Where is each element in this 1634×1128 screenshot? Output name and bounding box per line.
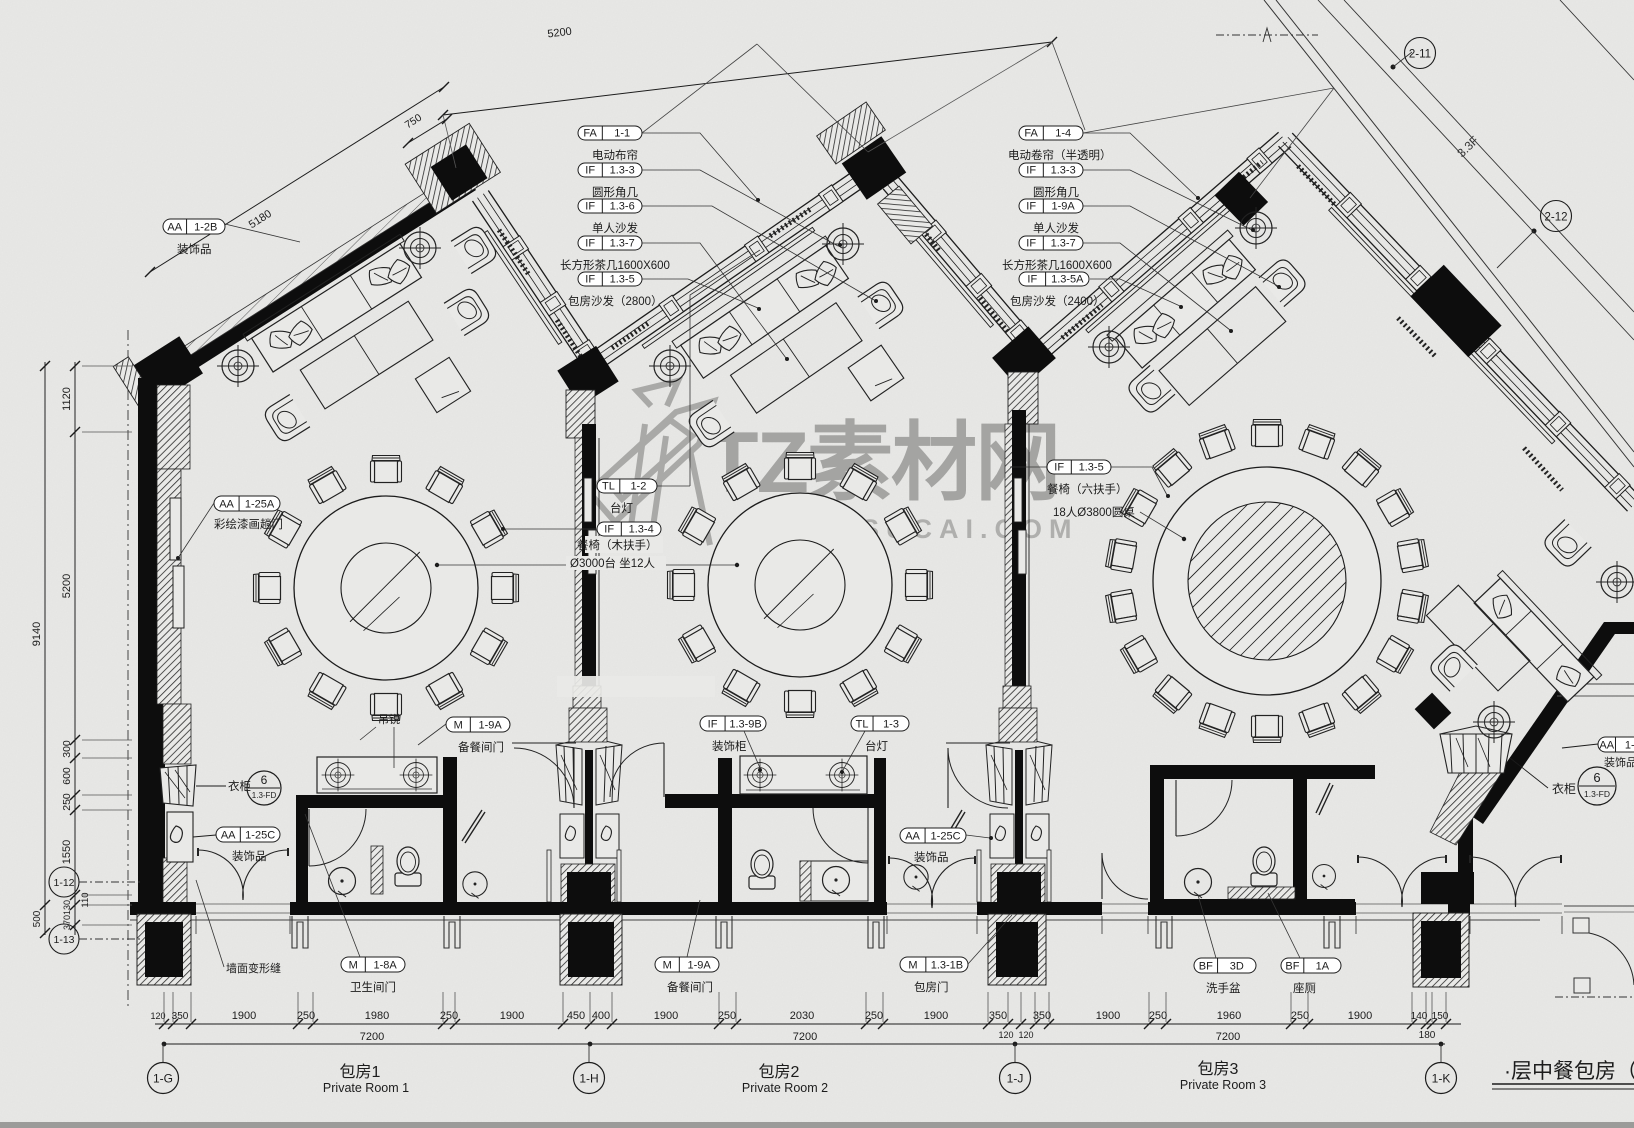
svg-text:AA: AA (167, 222, 182, 234)
svg-text:1-G: 1-G (153, 1072, 173, 1086)
svg-text:1.3-3: 1.3-3 (1051, 165, 1076, 177)
svg-text:Private Room 1: Private Room 1 (323, 1081, 409, 1095)
svg-text:AA: AA (1599, 740, 1614, 752)
svg-text:1-K: 1-K (1432, 1072, 1451, 1086)
svg-text:包房2: 包房2 (759, 1063, 800, 1081)
svg-text:TL: TL (856, 719, 869, 731)
svg-text:140: 140 (1411, 1011, 1428, 1022)
svg-text:FA: FA (1024, 128, 1038, 140)
svg-text:350: 350 (1033, 1010, 1051, 1022)
svg-text:120: 120 (998, 1030, 1013, 1040)
svg-text:长方形茶几1600X600: 长方形茶几1600X600 (560, 258, 670, 272)
svg-text:1-4: 1-4 (1055, 128, 1071, 140)
svg-text:250: 250 (440, 1010, 458, 1022)
svg-text:包房沙发（2800）: 包房沙发（2800） (568, 294, 663, 308)
svg-text:台灯: 台灯 (865, 739, 888, 753)
svg-text:350: 350 (989, 1010, 1007, 1022)
svg-text:IF: IF (708, 719, 718, 731)
svg-text:7200: 7200 (1216, 1031, 1240, 1043)
svg-text:120: 120 (1018, 1030, 1033, 1040)
svg-text:2-12: 2-12 (1544, 212, 1567, 224)
svg-text:1-8A: 1-8A (374, 960, 398, 972)
svg-text:300: 300 (61, 740, 73, 758)
svg-text:墙面变形缝: 墙面变形缝 (226, 961, 281, 975)
svg-text:·层中餐包房（1、: ·层中餐包房（1、 (1504, 1060, 1634, 1083)
svg-text:1.3-5A: 1.3-5A (1051, 274, 1084, 286)
svg-text:吊锐: 吊锐 (378, 712, 400, 726)
svg-text:IF: IF (1026, 165, 1036, 177)
svg-text:1900: 1900 (1348, 1010, 1372, 1022)
svg-text:装饰柜: 装饰柜 (712, 739, 747, 753)
svg-text:1-12: 1-12 (53, 877, 74, 889)
svg-text:1900: 1900 (654, 1010, 678, 1022)
svg-text:Private Room 2: Private Room 2 (742, 1081, 828, 1095)
svg-text:1A: 1A (1316, 961, 1330, 973)
svg-text:包房门: 包房门 (914, 980, 949, 994)
svg-text:AA: AA (905, 831, 920, 843)
svg-text:IF: IF (1026, 201, 1036, 213)
svg-text:台灯: 台灯 (610, 501, 633, 515)
svg-text:洗手盆: 洗手盆 (1206, 981, 1241, 995)
svg-text:M: M (663, 960, 672, 972)
svg-text:1.3-9B: 1.3-9B (729, 719, 761, 731)
svg-text:250: 250 (718, 1010, 736, 1022)
svg-text:IF: IF (585, 165, 595, 177)
svg-text:110: 110 (80, 892, 91, 907)
svg-text:9140: 9140 (31, 622, 43, 646)
svg-text:FA: FA (583, 128, 597, 140)
svg-text:250: 250 (297, 1010, 315, 1022)
svg-text:250: 250 (1291, 1010, 1309, 1022)
svg-text:包房3: 包房3 (1198, 1060, 1239, 1078)
svg-text:1.3-1B: 1.3-1B (931, 960, 963, 972)
svg-text:1.3-7: 1.3-7 (610, 238, 635, 250)
svg-text:IF: IF (585, 201, 595, 213)
svg-text:450: 450 (567, 1010, 585, 1022)
svg-text:长方形茶几1600X600: 长方形茶几1600X600 (1002, 258, 1112, 272)
svg-text:单人沙发: 单人沙发 (1033, 221, 1079, 235)
svg-text:600: 600 (61, 767, 73, 785)
svg-text:餐椅（六扶手）: 餐椅（六扶手） (1047, 482, 1128, 496)
svg-text:IF: IF (1027, 274, 1037, 286)
svg-text:250: 250 (61, 793, 73, 811)
svg-text:1.3-4: 1.3-4 (629, 524, 654, 536)
svg-text:1.3-FD: 1.3-FD (252, 791, 277, 800)
svg-text:BF: BF (1199, 961, 1213, 973)
svg-text:1-9A: 1-9A (688, 960, 712, 972)
svg-text:1550: 1550 (61, 840, 73, 864)
svg-text:卫生间门: 卫生间门 (350, 980, 396, 994)
svg-text:1-25A: 1-25A (245, 499, 275, 511)
svg-text:3D: 3D (1230, 961, 1244, 973)
svg-text:250: 250 (1149, 1010, 1167, 1022)
svg-text:1.3-7: 1.3-7 (1051, 238, 1076, 250)
svg-text:1980: 1980 (365, 1010, 389, 1022)
svg-text:IF: IF (1026, 238, 1036, 250)
svg-text:120: 120 (150, 1011, 165, 1021)
svg-text:1-: 1- (1625, 740, 1634, 752)
svg-text:1-2B: 1-2B (194, 222, 217, 234)
svg-text:1-13: 1-13 (53, 934, 74, 946)
svg-text:7200: 7200 (793, 1031, 817, 1043)
svg-text:备餐间门: 备餐间门 (458, 740, 504, 754)
svg-text:1900: 1900 (1096, 1010, 1120, 1022)
svg-text:M: M (349, 960, 358, 972)
svg-text:2-11: 2-11 (1409, 49, 1431, 61)
svg-text:6: 6 (1593, 770, 1600, 785)
svg-text:1900: 1900 (500, 1010, 524, 1022)
svg-text:1-9A: 1-9A (1052, 201, 1076, 213)
svg-text:圆形角几: 圆形角几 (1033, 186, 1079, 199)
svg-text:餐椅（木扶手）: 餐椅（木扶手） (577, 538, 658, 552)
svg-text:1-25C: 1-25C (931, 831, 961, 843)
svg-text:M: M (908, 960, 917, 972)
svg-text:1-3: 1-3 (883, 719, 899, 731)
svg-text:500: 500 (32, 910, 43, 927)
svg-text:1960: 1960 (1217, 1010, 1241, 1022)
svg-text:1120: 1120 (61, 387, 73, 411)
svg-text:座厕: 座厕 (1293, 981, 1316, 995)
svg-text:AA: AA (219, 499, 234, 511)
svg-text:装饰品: 装饰品 (914, 850, 949, 864)
svg-text:1-1: 1-1 (614, 128, 630, 140)
svg-text:5200: 5200 (61, 574, 73, 598)
svg-text:6: 6 (261, 773, 268, 787)
svg-text:装饰品: 装饰品 (1604, 755, 1634, 769)
svg-text:单人沙发: 单人沙发 (592, 221, 638, 235)
svg-text:圆形角几: 圆形角几 (592, 186, 638, 199)
svg-text:18人Ø3800圆桌: 18人Ø3800圆桌 (1053, 506, 1135, 519)
svg-text:电动布帘: 电动布帘 (592, 148, 638, 162)
svg-text:电动卷帘（半透明）: 电动卷帘（半透明） (1008, 148, 1112, 162)
svg-text:IF: IF (585, 238, 595, 250)
svg-text:1-H: 1-H (579, 1072, 598, 1086)
svg-text:350: 350 (172, 1011, 189, 1022)
svg-text:1-2: 1-2 (630, 481, 646, 493)
svg-text:400: 400 (592, 1010, 610, 1022)
svg-text:包房沙发（2400）: 包房沙发（2400） (1010, 294, 1105, 308)
svg-text:1-9A: 1-9A (479, 720, 503, 732)
svg-text:装饰品: 装饰品 (232, 849, 267, 863)
svg-text:180: 180 (1419, 1030, 1436, 1041)
svg-text:M: M (454, 720, 463, 732)
svg-text:IF: IF (604, 524, 614, 536)
svg-text:1-25C: 1-25C (245, 830, 275, 842)
svg-text:1.3-5: 1.3-5 (610, 274, 635, 286)
svg-text:7200: 7200 (360, 1031, 384, 1043)
svg-text:1.3-6: 1.3-6 (610, 201, 635, 213)
svg-text:彩绘漆画趟门: 彩绘漆画趟门 (214, 517, 283, 531)
svg-text:250: 250 (865, 1010, 883, 1022)
svg-text:包房1: 包房1 (340, 1063, 381, 1081)
svg-text:Private Room 3: Private Room 3 (1180, 1078, 1266, 1092)
svg-text:1900: 1900 (232, 1010, 256, 1022)
svg-text:1.3-3: 1.3-3 (610, 165, 635, 177)
svg-text:AA: AA (221, 830, 236, 842)
svg-text:IF: IF (1054, 462, 1064, 474)
svg-text:Ø3000台 坐12人: Ø3000台 坐12人 (570, 556, 656, 570)
svg-text:1900: 1900 (924, 1010, 948, 1022)
svg-text:1.3-5: 1.3-5 (1079, 462, 1104, 474)
svg-text:TL: TL (602, 481, 615, 493)
svg-text:备餐间门: 备餐间门 (667, 980, 713, 994)
svg-text:装饰品: 装饰品 (177, 242, 212, 256)
svg-text:衣柜: 衣柜 (1552, 781, 1576, 796)
svg-text:1-J: 1-J (1007, 1072, 1024, 1086)
svg-text:BF: BF (1285, 961, 1299, 973)
svg-text:1.3-FD: 1.3-FD (1584, 789, 1610, 799)
svg-text:150: 150 (1432, 1011, 1449, 1022)
svg-text:2030: 2030 (790, 1010, 814, 1022)
svg-text:IF: IF (585, 274, 595, 286)
